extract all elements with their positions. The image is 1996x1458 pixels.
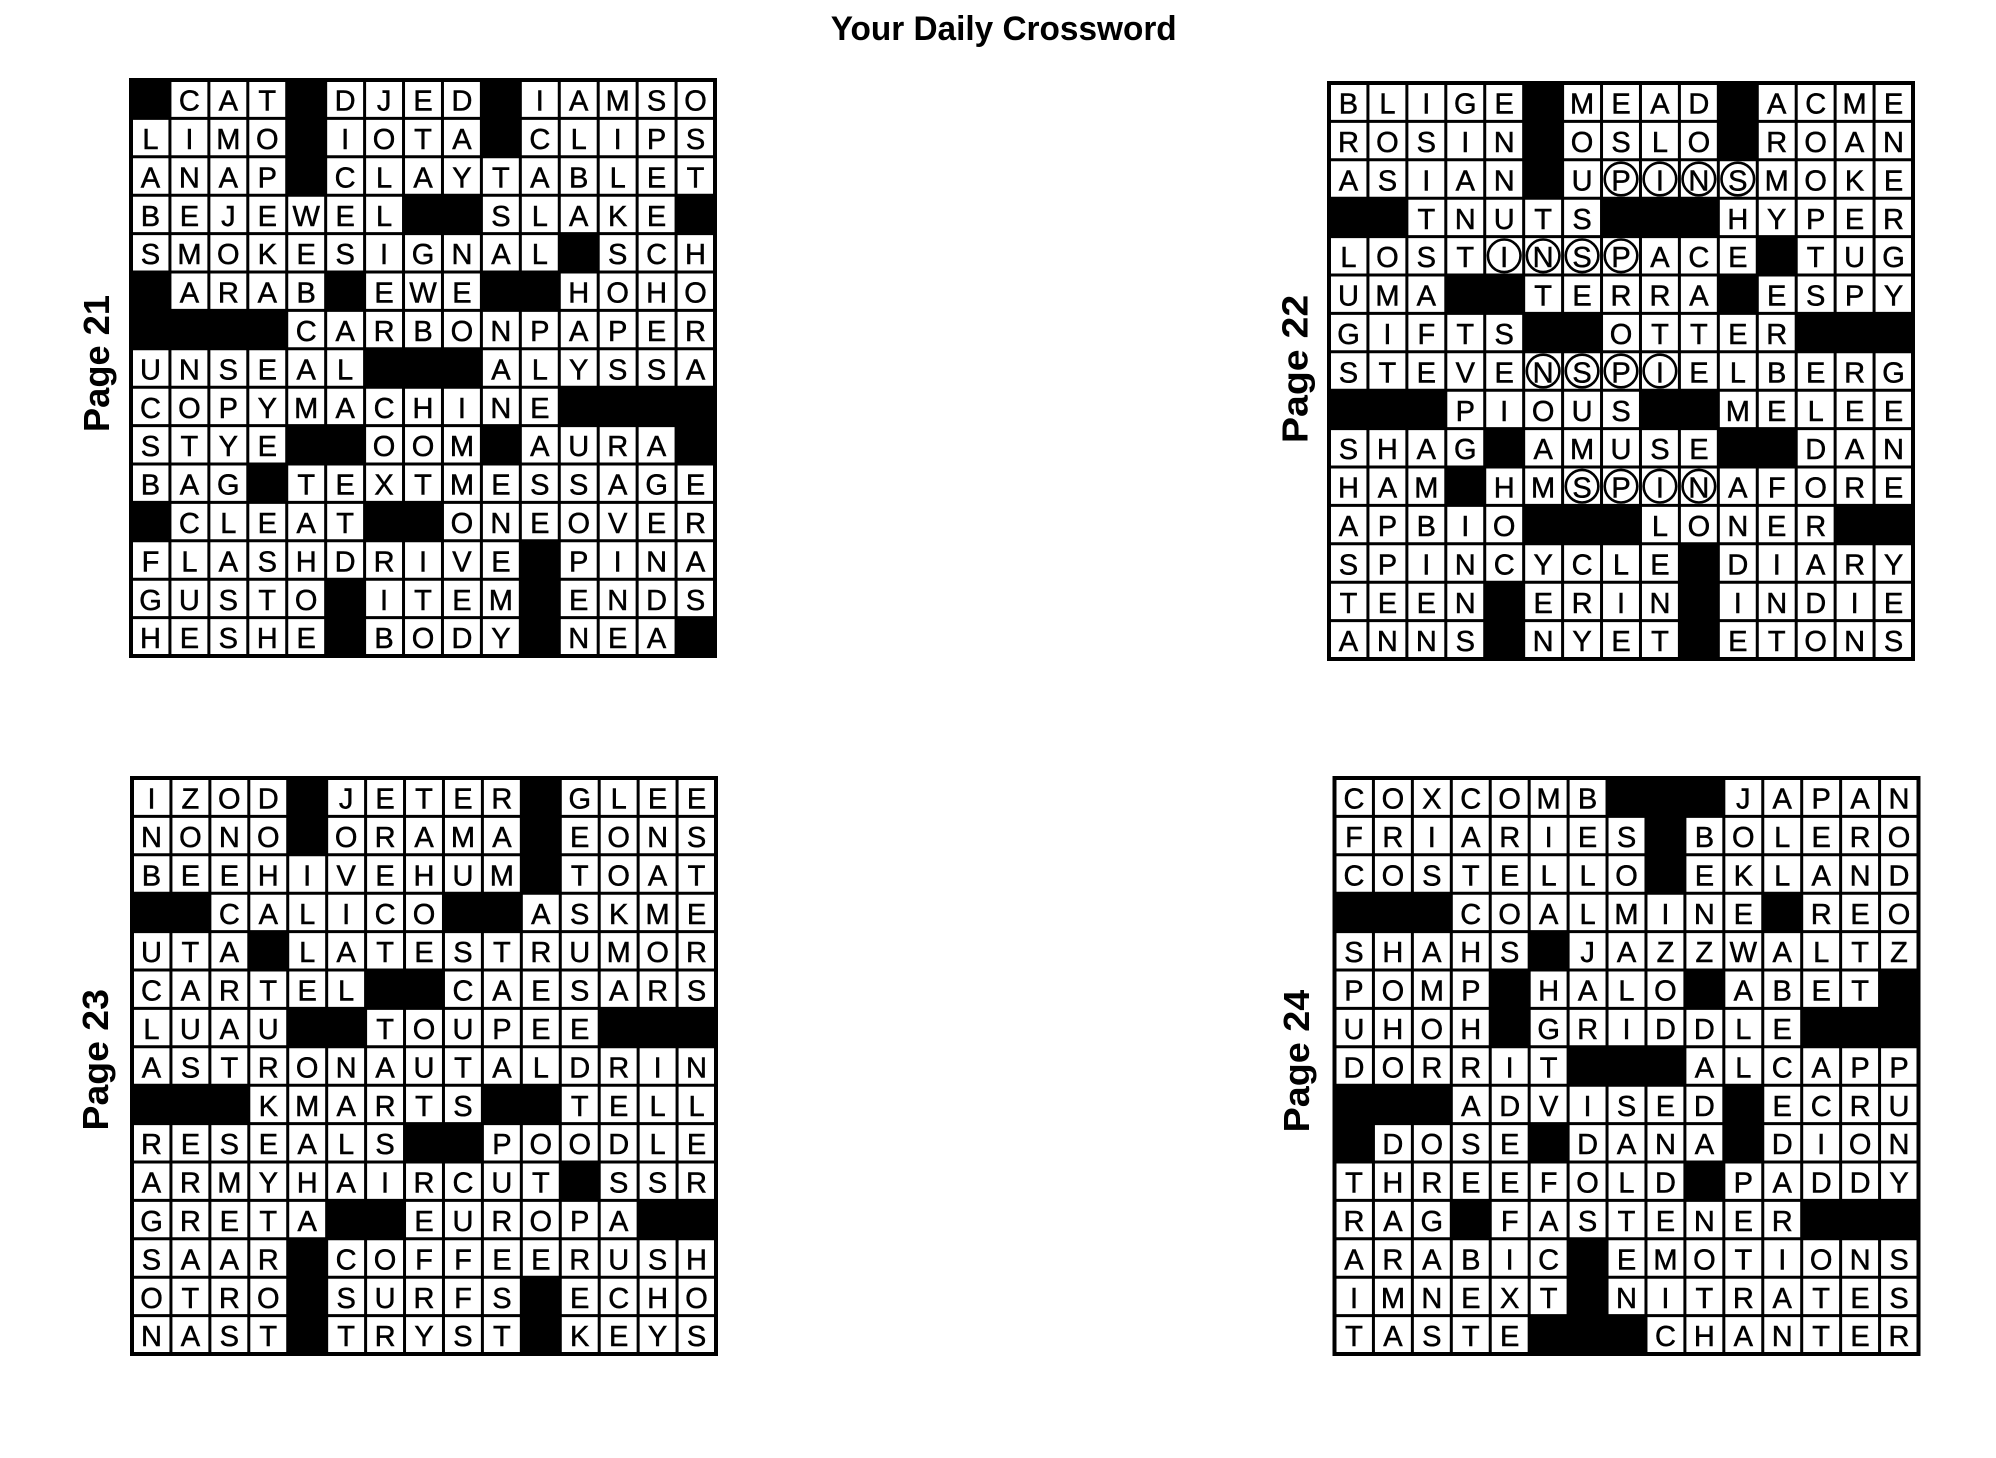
svg-text:A: A xyxy=(1650,89,1670,121)
svg-text:E: E xyxy=(1728,319,1747,351)
svg-text:E: E xyxy=(1767,396,1786,428)
svg-text:I: I xyxy=(1500,396,1508,428)
svg-text:S: S xyxy=(142,1244,161,1276)
svg-text:P: P xyxy=(1611,357,1630,389)
svg-text:K: K xyxy=(1845,165,1865,197)
svg-text:E: E xyxy=(1884,473,1903,505)
svg-text:L: L xyxy=(1730,357,1746,389)
svg-text:P: P xyxy=(570,1206,589,1238)
svg-text:R: R xyxy=(219,976,240,1008)
svg-text:E: E xyxy=(413,86,432,118)
svg-text:O: O xyxy=(1688,127,1711,159)
svg-text:E: E xyxy=(531,1244,550,1276)
svg-text:S: S xyxy=(686,124,705,156)
svg-text:I: I xyxy=(1545,822,1553,854)
svg-text:G: G xyxy=(1337,319,1360,351)
svg-text:A: A xyxy=(492,1052,512,1084)
svg-text:T: T xyxy=(492,162,510,194)
svg-text:C: C xyxy=(1460,899,1481,931)
svg-text:O: O xyxy=(218,784,241,816)
svg-text:L: L xyxy=(1618,976,1634,1008)
svg-text:F: F xyxy=(454,1283,472,1315)
svg-text:S: S xyxy=(335,239,354,271)
svg-text:S: S xyxy=(608,239,627,271)
svg-text:E: E xyxy=(258,508,277,540)
svg-text:N: N xyxy=(1533,357,1554,389)
svg-text:P: P xyxy=(1811,784,1830,816)
svg-text:K: K xyxy=(258,239,278,271)
svg-text:N: N xyxy=(1688,473,1709,505)
svg-text:M: M xyxy=(1653,1244,1677,1276)
svg-text:P: P xyxy=(1378,549,1397,581)
svg-text:G: G xyxy=(645,470,668,502)
svg-text:R: R xyxy=(258,1244,279,1276)
svg-text:T: T xyxy=(1540,1283,1558,1315)
svg-text:R: R xyxy=(1421,1052,1442,1084)
svg-text:R: R xyxy=(1850,822,1871,854)
svg-text:A: A xyxy=(1734,976,1754,1008)
svg-text:O: O xyxy=(1532,396,1555,428)
svg-text:D: D xyxy=(258,784,279,816)
svg-text:A: A xyxy=(569,86,589,118)
svg-text:S: S xyxy=(141,431,160,463)
svg-text:I: I xyxy=(1656,357,1664,389)
svg-text:N: N xyxy=(490,316,511,348)
svg-text:T: T xyxy=(1651,626,1669,658)
svg-text:I: I xyxy=(1506,1244,1514,1276)
svg-text:T: T xyxy=(181,431,199,463)
svg-text:A: A xyxy=(181,1321,201,1353)
svg-text:R: R xyxy=(1850,1091,1871,1123)
svg-text:A: A xyxy=(220,937,240,969)
svg-text:F: F xyxy=(142,546,160,578)
svg-text:O: O xyxy=(295,585,318,617)
svg-text:S: S xyxy=(1422,860,1441,892)
svg-text:A: A xyxy=(1456,165,1476,197)
svg-text:S: S xyxy=(1617,1091,1636,1123)
svg-text:A: A xyxy=(1811,1052,1831,1084)
svg-text:B: B xyxy=(569,162,588,194)
svg-text:I: I xyxy=(341,124,349,156)
svg-text:K: K xyxy=(609,899,629,931)
svg-text:I: I xyxy=(1584,1091,1592,1123)
svg-text:S: S xyxy=(1884,626,1903,658)
svg-text:S: S xyxy=(687,976,706,1008)
svg-text:F: F xyxy=(454,1244,472,1276)
svg-text:T: T xyxy=(414,585,432,617)
svg-text:T: T xyxy=(1696,1283,1714,1315)
svg-text:E: E xyxy=(647,508,666,540)
svg-text:O: O xyxy=(140,1283,163,1315)
svg-text:A: A xyxy=(259,899,279,931)
svg-text:M: M xyxy=(1375,281,1399,313)
svg-text:U: U xyxy=(1572,396,1593,428)
svg-text:F: F xyxy=(1417,319,1435,351)
svg-text:C: C xyxy=(374,393,395,425)
svg-text:B: B xyxy=(374,623,393,655)
svg-text:I: I xyxy=(1422,549,1430,581)
svg-text:E: E xyxy=(1495,357,1514,389)
svg-text:E: E xyxy=(530,508,549,540)
svg-text:M: M xyxy=(1726,396,1750,428)
svg-text:A: A xyxy=(336,937,356,969)
svg-text:C: C xyxy=(140,393,161,425)
svg-text:O: O xyxy=(1888,899,1911,931)
svg-text:A: A xyxy=(1533,434,1553,466)
svg-text:Your Daily Crossword: Your Daily Crossword xyxy=(831,10,1177,48)
svg-text:E: E xyxy=(1773,1091,1792,1123)
svg-text:T: T xyxy=(1345,1321,1363,1353)
svg-text:M: M xyxy=(1420,976,1444,1008)
svg-text:N: N xyxy=(1883,127,1904,159)
svg-text:I: I xyxy=(1851,588,1859,620)
svg-text:D: D xyxy=(569,1052,590,1084)
svg-text:C: C xyxy=(296,316,317,348)
svg-text:S: S xyxy=(608,354,627,386)
svg-text:E: E xyxy=(1417,357,1436,389)
svg-text:B: B xyxy=(1339,89,1358,121)
svg-text:E: E xyxy=(414,1206,433,1238)
svg-text:A: A xyxy=(1461,1091,1481,1123)
svg-text:L: L xyxy=(299,937,315,969)
svg-text:G: G xyxy=(412,239,435,271)
svg-text:O: O xyxy=(1888,822,1911,854)
svg-text:E: E xyxy=(335,201,354,233)
svg-text:B: B xyxy=(1417,511,1436,543)
svg-text:T: T xyxy=(1690,319,1708,351)
svg-text:Page 21: Page 21 xyxy=(76,295,117,432)
svg-text:Y: Y xyxy=(452,162,471,194)
svg-text:T: T xyxy=(493,937,511,969)
svg-text:S: S xyxy=(492,1283,511,1315)
svg-text:C: C xyxy=(1805,89,1826,121)
svg-text:T: T xyxy=(258,585,276,617)
svg-text:S: S xyxy=(219,623,238,655)
svg-text:M: M xyxy=(1537,784,1561,816)
svg-text:O: O xyxy=(1498,784,1521,816)
svg-text:I: I xyxy=(614,546,622,578)
svg-text:O: O xyxy=(335,822,358,854)
svg-text:T: T xyxy=(337,1321,355,1353)
svg-text:A: A xyxy=(686,546,706,578)
svg-text:I: I xyxy=(1734,588,1742,620)
svg-text:L: L xyxy=(1735,1014,1751,1046)
svg-text:L: L xyxy=(1579,899,1595,931)
svg-text:M: M xyxy=(1765,165,1789,197)
svg-text:E: E xyxy=(452,278,471,310)
svg-text:R: R xyxy=(1382,822,1403,854)
svg-text:D: D xyxy=(1655,1168,1676,1200)
svg-text:P: P xyxy=(1461,976,1480,1008)
svg-text:D: D xyxy=(1850,1168,1871,1200)
svg-text:B: B xyxy=(1578,784,1597,816)
svg-text:A: A xyxy=(1339,165,1359,197)
svg-text:B: B xyxy=(413,316,432,348)
svg-text:S: S xyxy=(530,470,549,502)
svg-text:H: H xyxy=(1382,1014,1403,1046)
svg-text:E: E xyxy=(297,623,316,655)
svg-text:O: O xyxy=(1688,511,1711,543)
svg-text:S: S xyxy=(687,1321,706,1353)
svg-text:E: E xyxy=(1689,357,1708,389)
svg-text:I: I xyxy=(1817,1129,1825,1161)
svg-text:P: P xyxy=(1611,242,1630,274)
svg-text:O: O xyxy=(1849,1129,1872,1161)
svg-text:P: P xyxy=(647,124,666,156)
svg-text:A: A xyxy=(219,546,239,578)
svg-text:E: E xyxy=(569,585,588,617)
svg-text:I: I xyxy=(1461,127,1469,159)
svg-text:A: A xyxy=(1344,1244,1364,1276)
svg-text:C: C xyxy=(219,899,240,931)
svg-text:A: A xyxy=(452,124,472,156)
svg-text:H: H xyxy=(646,278,667,310)
svg-text:P: P xyxy=(1889,1052,1908,1084)
svg-text:Y: Y xyxy=(569,354,588,386)
svg-text:H: H xyxy=(647,1283,668,1315)
svg-text:E: E xyxy=(414,937,433,969)
svg-text:B: B xyxy=(141,470,160,502)
svg-text:E: E xyxy=(648,784,667,816)
svg-text:T: T xyxy=(1812,1321,1830,1353)
svg-text:R: R xyxy=(569,1244,590,1276)
svg-text:D: D xyxy=(1499,1091,1520,1123)
svg-text:I: I xyxy=(1661,899,1669,931)
svg-text:Y: Y xyxy=(259,1168,278,1200)
svg-text:S: S xyxy=(609,1168,628,1200)
svg-text:O: O xyxy=(1571,127,1594,159)
svg-text:N: N xyxy=(1494,127,1515,159)
svg-text:O: O xyxy=(373,431,396,463)
svg-text:T: T xyxy=(1462,860,1480,892)
svg-text:P: P xyxy=(492,1014,511,1046)
svg-text:E: E xyxy=(647,201,666,233)
svg-text:O: O xyxy=(530,1129,553,1161)
svg-text:S: S xyxy=(570,899,589,931)
svg-text:O: O xyxy=(684,278,707,310)
svg-text:A: A xyxy=(1773,1168,1793,1200)
svg-text:H: H xyxy=(296,546,317,578)
svg-text:A: A xyxy=(609,1206,629,1238)
svg-text:A: A xyxy=(647,431,667,463)
svg-text:S: S xyxy=(648,1244,667,1276)
svg-text:R: R xyxy=(1611,281,1632,313)
svg-text:S: S xyxy=(1572,242,1591,274)
svg-text:I: I xyxy=(380,239,388,271)
svg-text:E: E xyxy=(1728,242,1747,274)
svg-text:P: P xyxy=(1378,511,1397,543)
svg-text:L: L xyxy=(532,201,548,233)
svg-text:U: U xyxy=(180,1014,201,1046)
svg-text:A: A xyxy=(1773,1283,1793,1315)
svg-text:R: R xyxy=(685,316,706,348)
svg-text:E: E xyxy=(686,470,705,502)
svg-text:T: T xyxy=(1456,319,1474,351)
svg-text:Page 22: Page 22 xyxy=(1275,295,1316,443)
svg-text:N: N xyxy=(1688,165,1709,197)
svg-text:O: O xyxy=(684,86,707,118)
svg-text:S: S xyxy=(1650,434,1669,466)
svg-text:P: P xyxy=(1611,473,1630,505)
svg-text:L: L xyxy=(337,354,353,386)
svg-text:S: S xyxy=(648,1168,667,1200)
svg-text:G: G xyxy=(1454,89,1477,121)
svg-text:Page 23: Page 23 xyxy=(75,989,116,1130)
svg-text:I: I xyxy=(147,784,155,816)
svg-text:A: A xyxy=(686,354,706,386)
svg-text:S: S xyxy=(220,1321,239,1353)
svg-text:N: N xyxy=(1766,588,1787,620)
svg-text:I: I xyxy=(1500,242,1508,274)
svg-text:A: A xyxy=(336,1091,356,1123)
svg-text:D: D xyxy=(1805,588,1826,620)
svg-text:H: H xyxy=(1460,1014,1481,1046)
svg-text:R: R xyxy=(608,1052,629,1084)
svg-text:L: L xyxy=(1541,860,1557,892)
svg-text:B: B xyxy=(1773,976,1792,1008)
svg-text:I: I xyxy=(1778,1244,1786,1276)
svg-text:B: B xyxy=(142,860,161,892)
svg-text:X: X xyxy=(374,470,393,502)
svg-text:T: T xyxy=(1768,626,1786,658)
svg-text:I: I xyxy=(1773,549,1781,581)
svg-text:N: N xyxy=(1694,1206,1715,1238)
svg-text:E: E xyxy=(1689,434,1708,466)
svg-text:B: B xyxy=(1461,1244,1480,1276)
svg-text:B: B xyxy=(141,201,160,233)
svg-text:N: N xyxy=(568,623,589,655)
svg-text:L: L xyxy=(142,124,158,156)
svg-text:J: J xyxy=(377,86,392,118)
svg-text:A: A xyxy=(491,354,511,386)
svg-text:N: N xyxy=(1616,1283,1637,1315)
svg-text:F: F xyxy=(1540,1168,1558,1200)
svg-text:E: E xyxy=(1850,899,1869,931)
svg-text:T: T xyxy=(1345,1168,1363,1200)
svg-text:R: R xyxy=(219,1283,240,1315)
svg-text:S: S xyxy=(647,86,666,118)
svg-text:Y: Y xyxy=(258,393,277,425)
svg-text:O: O xyxy=(1498,899,1521,931)
svg-text:L: L xyxy=(143,1014,159,1046)
svg-text:I: I xyxy=(1622,1014,1630,1046)
svg-text:G: G xyxy=(1537,1014,1560,1046)
svg-text:M: M xyxy=(177,239,201,271)
svg-text:R: R xyxy=(1421,1168,1442,1200)
svg-text:N: N xyxy=(1883,434,1904,466)
svg-text:S: S xyxy=(1889,1244,1908,1276)
svg-text:A: A xyxy=(1339,511,1359,543)
svg-text:H: H xyxy=(1460,937,1481,969)
svg-text:A: A xyxy=(219,162,239,194)
svg-text:N: N xyxy=(490,393,511,425)
svg-text:L: L xyxy=(1774,860,1790,892)
svg-text:N: N xyxy=(1850,860,1871,892)
svg-text:A: A xyxy=(141,162,161,194)
svg-text:N: N xyxy=(647,822,668,854)
svg-text:H: H xyxy=(1538,976,1559,1008)
svg-text:O: O xyxy=(1493,511,1516,543)
svg-text:O: O xyxy=(179,822,202,854)
svg-text:E: E xyxy=(1884,396,1903,428)
svg-text:L: L xyxy=(1618,1168,1634,1200)
svg-text:T: T xyxy=(1651,319,1669,351)
svg-text:L: L xyxy=(611,784,627,816)
svg-text:R: R xyxy=(1805,511,1826,543)
svg-text:U: U xyxy=(1343,1014,1364,1046)
svg-text:Y: Y xyxy=(219,431,238,463)
svg-text:A: A xyxy=(1422,1244,1442,1276)
svg-text:U: U xyxy=(568,431,589,463)
svg-text:V: V xyxy=(452,546,472,578)
svg-text:H: H xyxy=(1727,204,1748,236)
svg-text:R: R xyxy=(1577,1014,1598,1046)
svg-text:G: G xyxy=(140,1206,163,1238)
svg-text:W: W xyxy=(409,278,437,310)
svg-text:T: T xyxy=(1534,281,1552,313)
svg-text:E: E xyxy=(1461,1283,1480,1315)
svg-text:O: O xyxy=(451,316,474,348)
svg-text:D: D xyxy=(1688,89,1709,121)
svg-text:R: R xyxy=(180,1206,201,1238)
svg-text:H: H xyxy=(1338,473,1359,505)
svg-text:E: E xyxy=(1578,822,1597,854)
svg-text:A: A xyxy=(1339,626,1359,658)
svg-text:E: E xyxy=(1734,1206,1753,1238)
svg-text:M: M xyxy=(1614,899,1638,931)
svg-text:I: I xyxy=(1506,1052,1514,1084)
svg-text:A: A xyxy=(414,822,434,854)
svg-text:R: R xyxy=(647,976,668,1008)
svg-text:N: N xyxy=(1694,899,1715,931)
svg-text:R: R xyxy=(258,1052,279,1084)
svg-text:D: D xyxy=(1382,1129,1403,1161)
svg-text:E: E xyxy=(1500,860,1519,892)
svg-text:P: P xyxy=(569,546,588,578)
svg-text:T: T xyxy=(414,124,432,156)
svg-text:L: L xyxy=(1808,396,1824,428)
svg-text:D: D xyxy=(1727,549,1748,581)
svg-text:E: E xyxy=(1500,1168,1519,1200)
svg-text:N: N xyxy=(141,1321,162,1353)
svg-text:U: U xyxy=(1889,1091,1910,1123)
svg-text:D: D xyxy=(335,546,356,578)
svg-text:H: H xyxy=(568,278,589,310)
svg-text:Z: Z xyxy=(1890,937,1908,969)
svg-text:H: H xyxy=(1694,1321,1715,1353)
svg-text:O: O xyxy=(1376,242,1399,274)
svg-text:L: L xyxy=(650,1129,666,1161)
svg-text:M: M xyxy=(450,470,474,502)
svg-text:S: S xyxy=(1611,396,1630,428)
svg-text:R: R xyxy=(1338,127,1359,159)
svg-text:O: O xyxy=(568,1129,591,1161)
svg-text:N: N xyxy=(1455,588,1476,620)
svg-text:O: O xyxy=(373,124,396,156)
svg-text:A: A xyxy=(220,1244,240,1276)
svg-text:H: H xyxy=(140,623,161,655)
svg-text:U: U xyxy=(1338,281,1359,313)
svg-text:M: M xyxy=(1531,473,1555,505)
svg-text:F: F xyxy=(1768,473,1786,505)
svg-text:E: E xyxy=(1845,396,1864,428)
svg-text:A: A xyxy=(335,316,355,348)
svg-text:I: I xyxy=(1461,511,1469,543)
svg-text:R: R xyxy=(1844,549,1865,581)
svg-text:R: R xyxy=(686,937,707,969)
svg-text:T: T xyxy=(259,1321,277,1353)
svg-text:V: V xyxy=(336,860,356,892)
